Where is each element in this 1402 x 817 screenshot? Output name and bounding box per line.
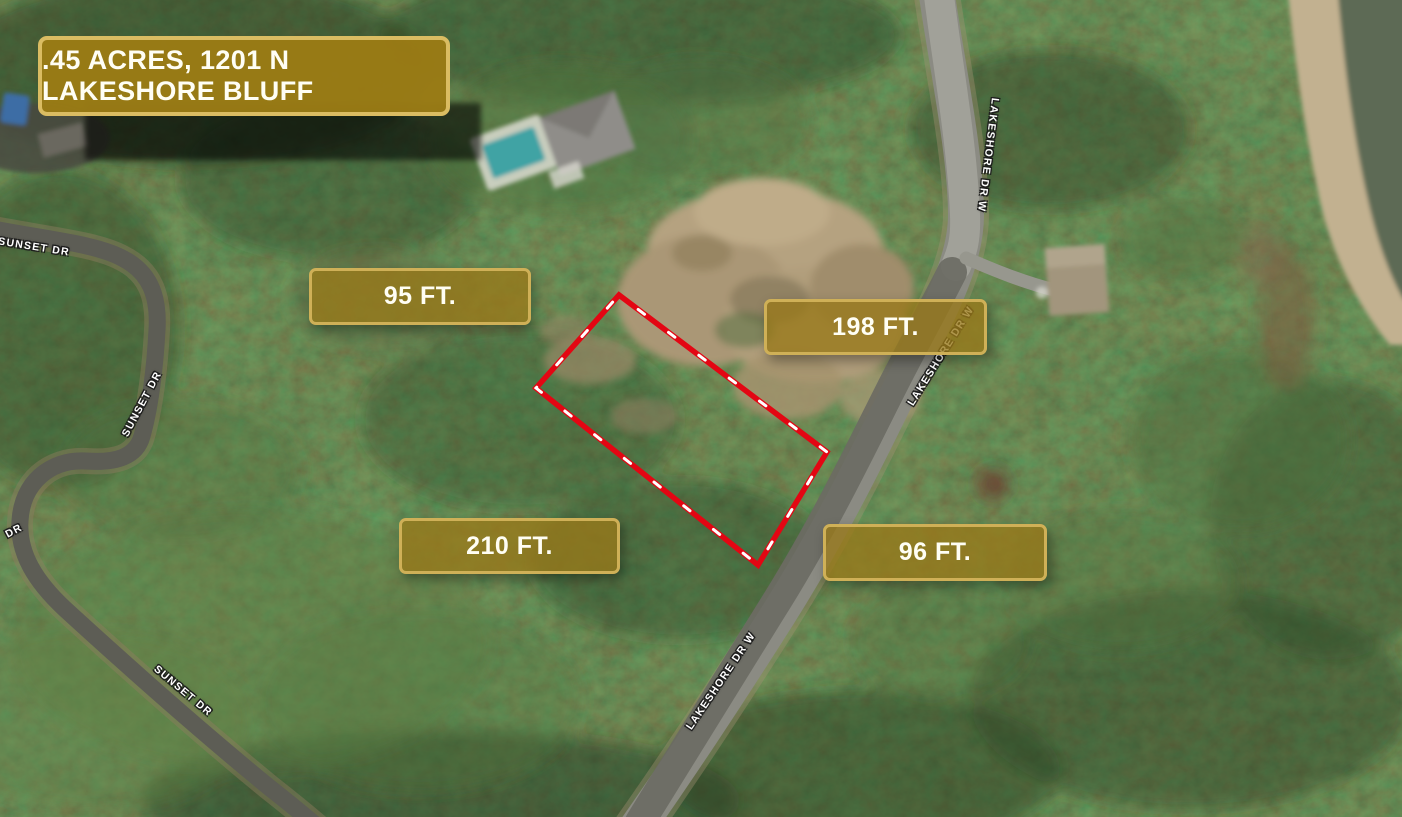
measurement-text-northeast: 198 FT.: [832, 313, 919, 342]
satellite-map-view: SUNSET DR SUNSET DR SUNSET DR DR LAKESHO…: [0, 0, 1402, 817]
measurement-label-northwest: 95 FT.: [309, 268, 531, 325]
property-title-banner: .45 ACRES, 1201 N LAKESHORE BLUFF: [38, 36, 450, 116]
measurement-label-northeast: 198 FT.: [764, 299, 987, 355]
measurement-text-northwest: 95 FT.: [384, 282, 456, 311]
property-title-text: .45 ACRES, 1201 N LAKESHORE BLUFF: [42, 45, 446, 107]
measurement-label-southwest: 210 FT.: [399, 518, 620, 574]
measurement-label-southeast: 96 FT.: [823, 524, 1047, 581]
red-tree: [976, 467, 1010, 501]
measurement-text-southwest: 210 FT.: [466, 532, 553, 561]
blue-object: [0, 92, 30, 125]
measurement-text-southeast: 96 FT.: [899, 538, 971, 567]
